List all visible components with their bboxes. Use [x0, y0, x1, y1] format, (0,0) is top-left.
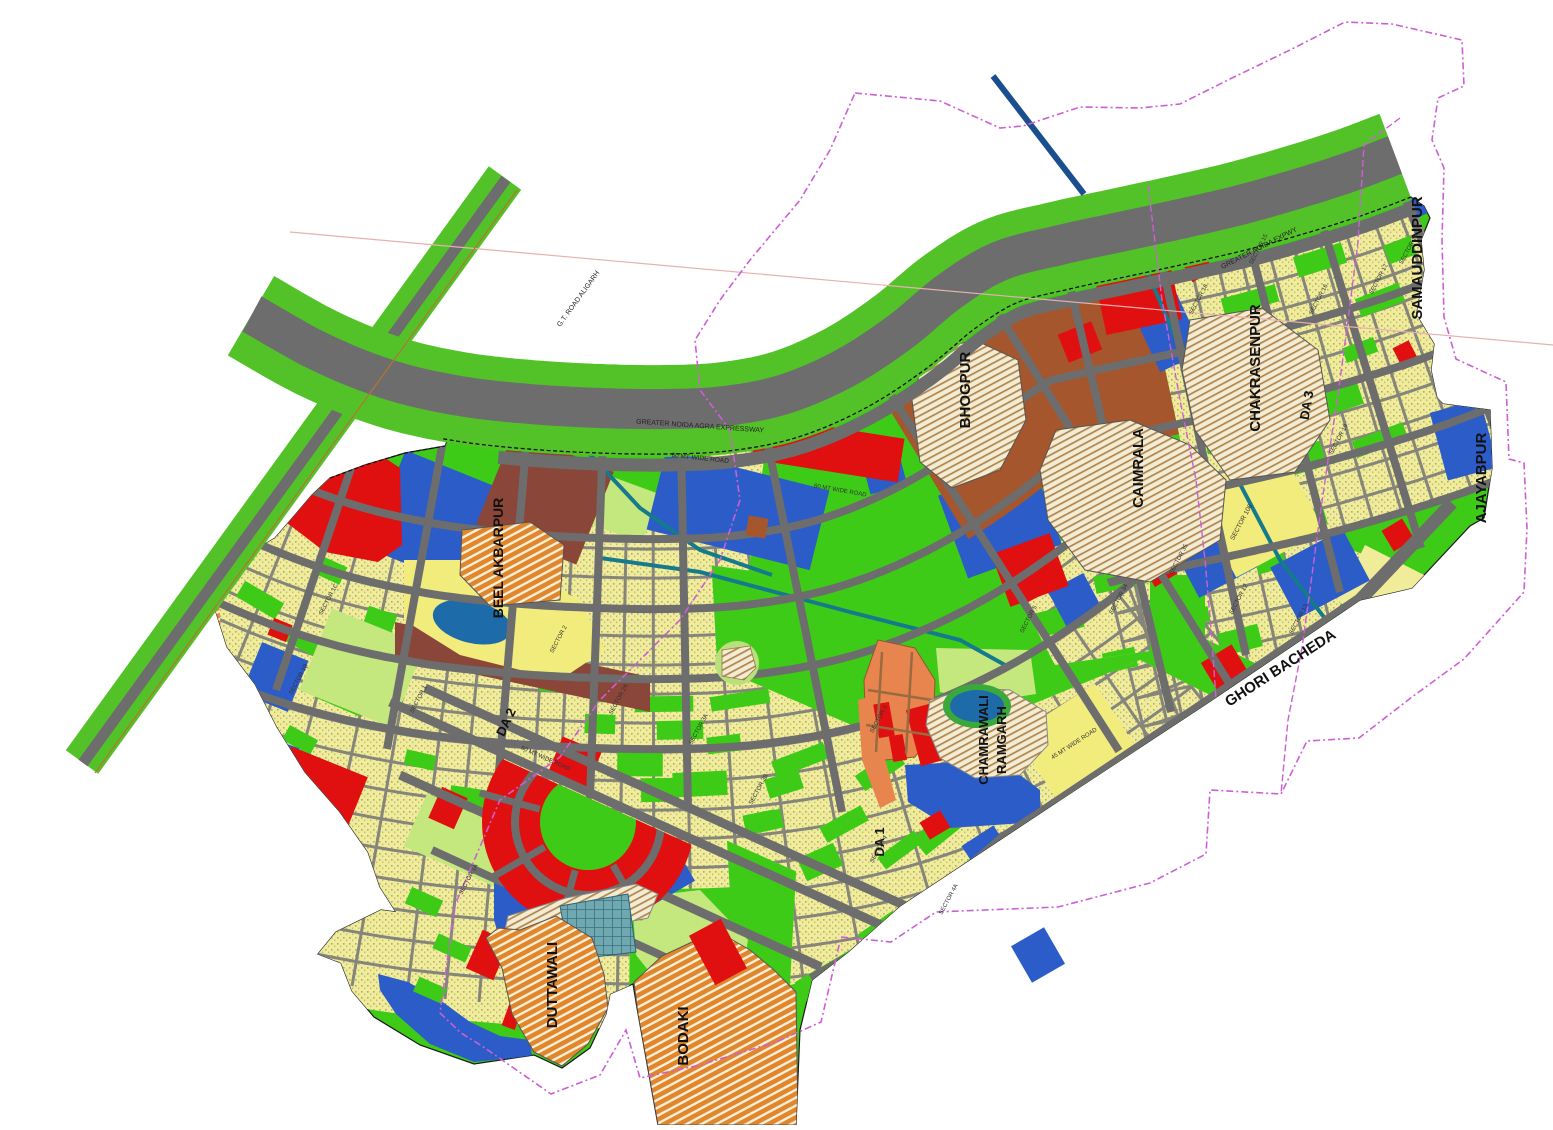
svg-text:AJAYABPUR: AJAYABPUR: [1473, 433, 1490, 524]
svg-text:CHAMRAWALI: CHAMRAWALI: [976, 695, 991, 785]
svg-text:RAMGARH: RAMGARH: [994, 706, 1009, 774]
svg-text:BEEL AKBARPUR: BEEL AKBARPUR: [490, 498, 506, 619]
svg-text:CAIMRALA: CAIMRALA: [1130, 428, 1147, 508]
svg-text:CHAKRASENPUR: CHAKRASENPUR: [1247, 304, 1264, 432]
svg-text:BODAKI: BODAKI: [675, 1006, 692, 1065]
svg-text:SAMAUDDINPUR: SAMAUDDINPUR: [1409, 196, 1426, 320]
svg-text:DUTTAWALI: DUTTAWALI: [544, 942, 561, 1028]
svg-text:BHOGPUR: BHOGPUR: [957, 351, 974, 428]
